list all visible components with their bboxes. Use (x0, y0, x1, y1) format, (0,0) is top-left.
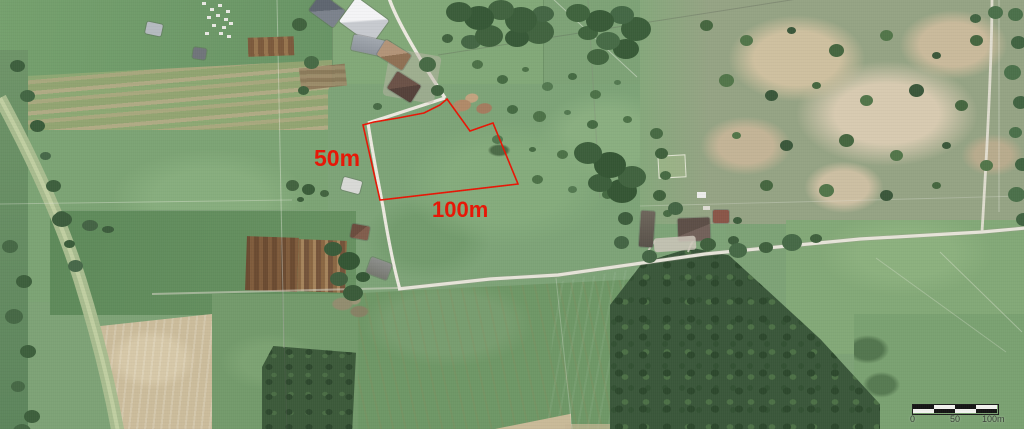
plot-side-length-label: 50m (314, 147, 360, 170)
plot-boundary-outline (363, 99, 518, 200)
plot-annotation-overlay (0, 0, 1024, 429)
aerial-photo-canvas: 0 50 100m 50m 100m (0, 0, 1024, 429)
plot-bottom-length-label: 100m (432, 199, 488, 221)
